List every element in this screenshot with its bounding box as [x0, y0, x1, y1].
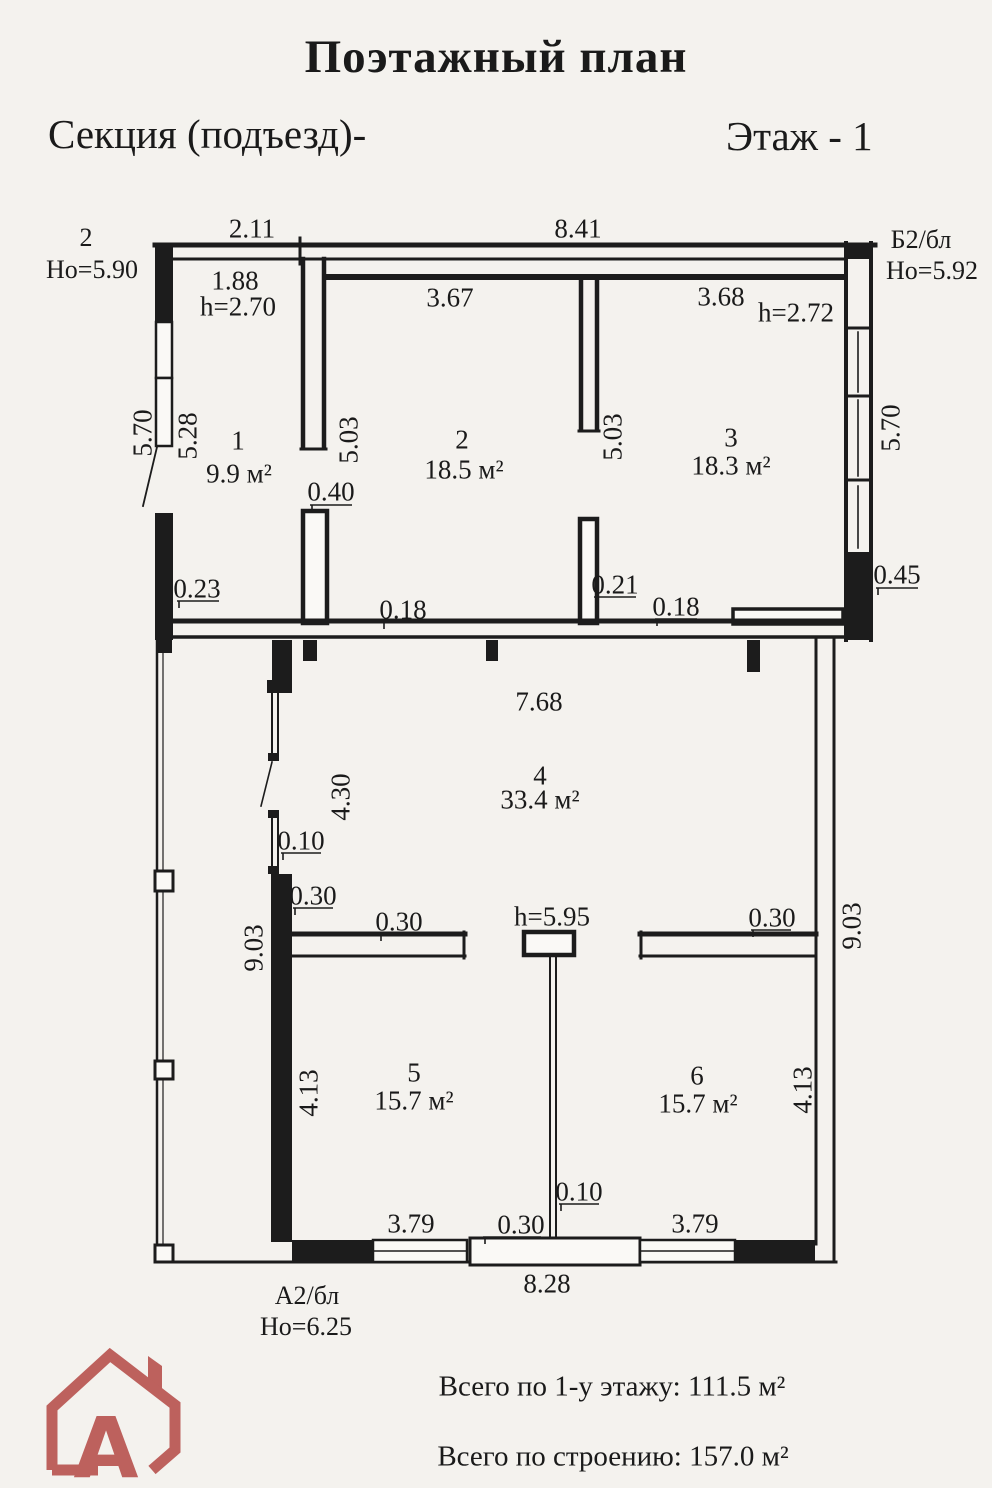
dim-room6-width: 3.79	[671, 1211, 718, 1238]
dim-glazing-010: 0.10	[277, 828, 324, 855]
room2-area: 18.5 м²	[424, 457, 503, 484]
dim-left-outer: 5.70	[130, 409, 157, 456]
dim-left-side: 9.03	[241, 924, 268, 971]
corner-top-left-height: Но=5.90	[46, 257, 138, 283]
dim-hall-height: 4.30	[328, 773, 355, 820]
footer-floor-total: Всего по 1-у этажу: 111.5 м²	[439, 1373, 786, 1402]
hall-height-label: h=5.95	[514, 904, 590, 931]
corner-top-right-block: Б2/бл	[891, 227, 952, 253]
dim-room2-width: 3.67	[426, 285, 473, 312]
footer-building-total: Всего по строению: 157.0 м²	[437, 1443, 788, 1472]
dim-bottom-width: 8.28	[523, 1271, 570, 1298]
room6-number: 6	[690, 1063, 704, 1090]
dim-stub-030-room6: 0.30	[748, 905, 795, 932]
dim-partition23: 5.03	[600, 413, 627, 460]
dim-wall-045: 0.45	[873, 562, 920, 589]
dim-wall-018-left: 0.18	[379, 597, 426, 624]
logo: А	[52, 1355, 175, 1488]
dim-right-side: 9.03	[839, 902, 866, 949]
dim-top-right: 8.41	[554, 216, 601, 243]
logo-letter: А	[73, 1399, 138, 1488]
corner-top-left-number: 2	[80, 225, 93, 251]
dim-wall-040: 0.40	[307, 479, 354, 506]
dim-door-030: 0.30	[497, 1212, 544, 1239]
room3-area: 18.3 м²	[691, 453, 770, 480]
room1-area: 9.9 м²	[206, 461, 272, 488]
room4-area: 33.4 м²	[500, 787, 579, 814]
room1-number: 1	[231, 428, 245, 455]
dim-partition12: 5.03	[336, 416, 363, 463]
dim-room6-height: 4.13	[790, 1066, 817, 1113]
dim-wall-030-left: 0.30	[289, 883, 336, 910]
corner-bottom-block: А2/бл	[275, 1283, 340, 1309]
room1-height: h=2.70	[200, 294, 276, 321]
floor-plan-drawing: А	[0, 0, 992, 1488]
room2-number: 2	[455, 427, 469, 454]
dim-room5-width: 3.79	[387, 1211, 434, 1238]
dim-hall-width: 7.68	[515, 689, 562, 716]
room5-number: 5	[407, 1060, 421, 1087]
room3-number: 3	[724, 425, 738, 452]
dim-wall-021: 0.21	[591, 572, 638, 599]
dim-top-left: 2.11	[229, 216, 275, 243]
dim-left-inner: 5.28	[175, 412, 202, 459]
corner-bottom-height: Но=6.25	[260, 1314, 352, 1340]
dim-room5-height: 4.13	[296, 1069, 323, 1116]
corner-top-right-height: Но=5.92	[886, 258, 978, 284]
dim-partition56-010: 0.10	[555, 1179, 602, 1206]
dim-wall-023: 0.23	[173, 576, 220, 603]
room3-height: h=2.72	[758, 300, 834, 327]
room5-area: 15.7 м²	[374, 1088, 453, 1115]
dim-right-outer: 5.70	[878, 404, 905, 451]
dim-room1-width: 1.88	[211, 268, 258, 295]
room6-area: 15.7 м²	[658, 1091, 737, 1118]
dim-room3-width: 3.68	[697, 284, 744, 311]
dim-stub-030-room5: 0.30	[375, 909, 422, 936]
dim-wall-018-right: 0.18	[652, 594, 699, 621]
floor-plan-page: Поэтажный план Секция (подъезд)- Этаж - …	[0, 0, 992, 1488]
